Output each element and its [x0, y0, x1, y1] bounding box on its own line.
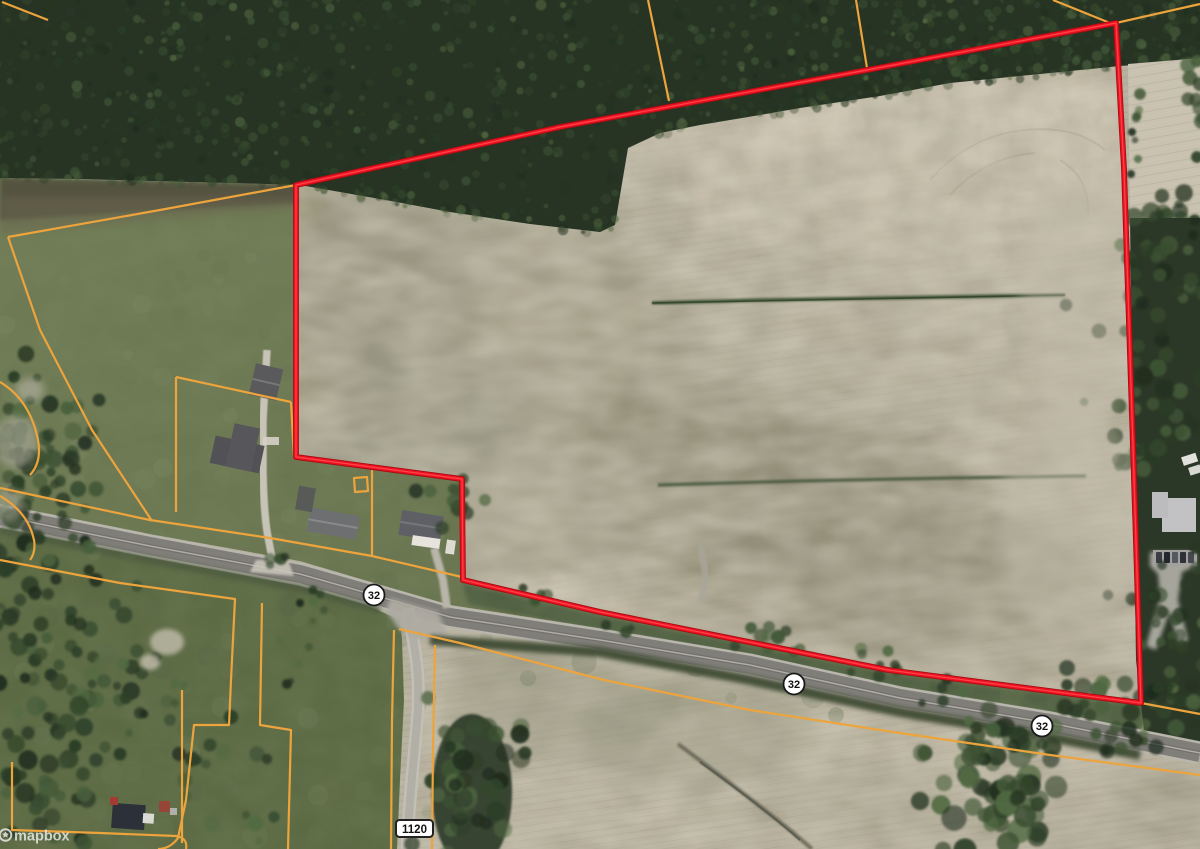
svg-text:mapbox: mapbox: [14, 829, 70, 845]
svg-text:32: 32: [368, 590, 380, 602]
svg-text:1120: 1120: [402, 824, 427, 836]
svg-text:32: 32: [788, 679, 800, 691]
svg-text:32: 32: [1036, 721, 1048, 733]
